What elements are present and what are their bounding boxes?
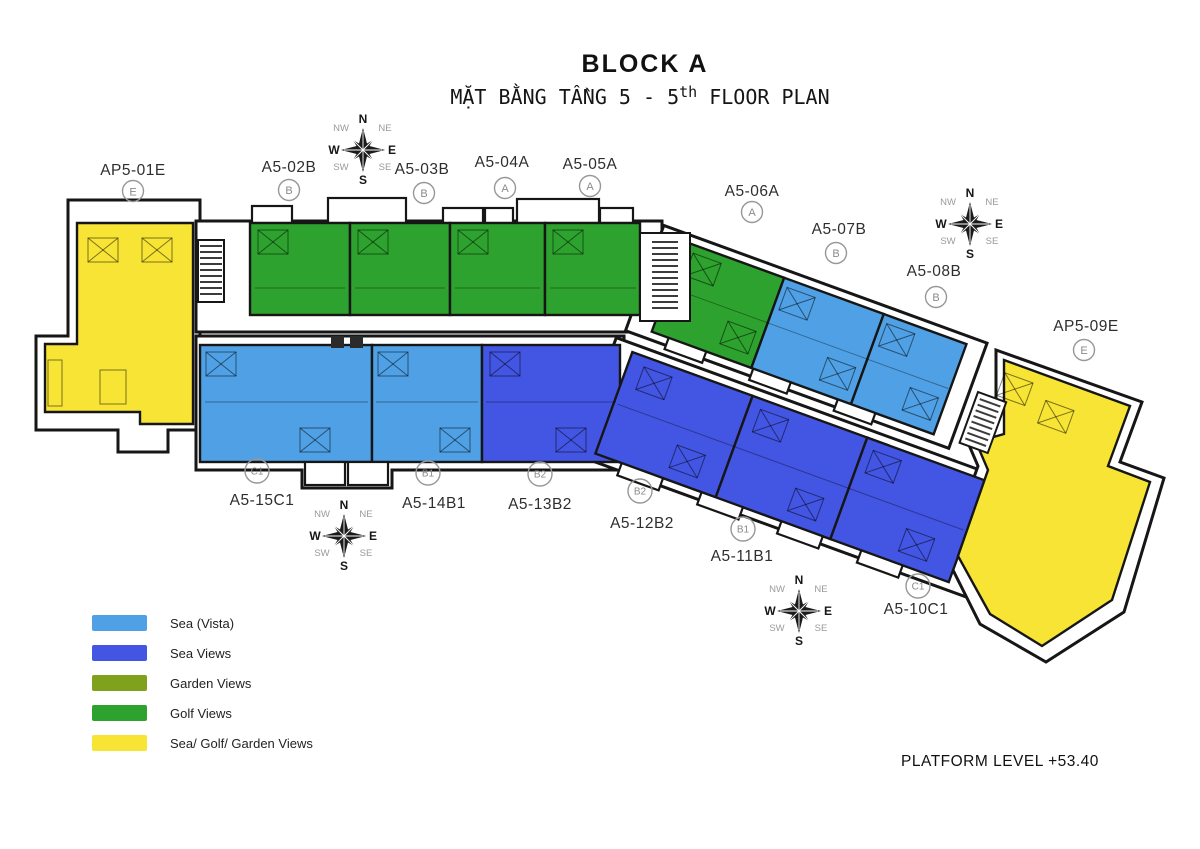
balcony <box>517 199 599 223</box>
balcony <box>328 198 406 223</box>
unit-label: A5-15C1 <box>230 492 295 509</box>
compass-ne: NE <box>985 197 998 208</box>
legend-item: Sea (Vista) <box>92 612 313 634</box>
unit-type: E <box>129 187 136 199</box>
unit-type: B <box>932 292 939 304</box>
unit-a5-15c1 <box>200 345 372 462</box>
unit-label: A5-08B <box>907 263 962 280</box>
page-subtitle: MẶT BẰNG TẦNG 5 - 5th FLOOR PLAN <box>450 83 829 109</box>
floor-plan-page: AP5-01E A5-02B A5-03B A5-04A A5-05A A5-0… <box>0 0 1200 849</box>
elevator <box>331 336 344 348</box>
unit-type: B2 <box>534 470 547 481</box>
unit-type: C1 <box>912 582 925 593</box>
unit-a5-14b1 <box>372 345 482 462</box>
unit-type: B1 <box>422 469 435 480</box>
legend-label: Sea Views <box>170 646 231 661</box>
platform-level-note: PLATFORM LEVEL +53.40 <box>901 753 1099 770</box>
compass-ne: NE <box>359 509 372 520</box>
compass-w: W <box>328 143 340 157</box>
legend-swatch <box>92 705 147 721</box>
unit-a5-04a <box>450 223 545 315</box>
balcony <box>443 208 483 223</box>
legend-swatch <box>92 735 147 751</box>
compass-s: S <box>795 634 803 648</box>
unit-type: B <box>420 188 427 200</box>
subtitle-prefix: MẶT BẰNG TẦNG 5 - 5 <box>450 84 679 109</box>
page-title: BLOCK A <box>582 50 709 78</box>
compass-nw: NW <box>940 197 956 208</box>
legend-label: Golf Views <box>170 706 232 721</box>
unit-label: A5-11B1 <box>711 548 774 565</box>
unit-label: A5-05A <box>563 156 618 173</box>
compass-se: SE <box>379 162 392 173</box>
unit-type: A <box>501 183 509 195</box>
compass-n: N <box>340 498 349 512</box>
balcony <box>348 462 388 485</box>
compass-se: SE <box>360 548 373 559</box>
unit-type: C1 <box>251 467 264 478</box>
unit-label: A5-13B2 <box>508 496 572 513</box>
unit-type: A <box>586 181 594 193</box>
compass-rose: NSEWNENWSESW <box>309 498 377 573</box>
unit-label: A5-10C1 <box>884 601 949 618</box>
compass-se: SE <box>815 623 828 634</box>
unit-label: A5-14B1 <box>402 495 466 512</box>
legend-label: Garden Views <box>170 676 251 691</box>
legend-swatch <box>92 615 147 631</box>
unit-type: E <box>1080 345 1087 357</box>
compass-sw: SW <box>314 548 329 559</box>
balcony <box>305 462 345 485</box>
unit-label: A5-02B <box>262 159 317 176</box>
subtitle-suffix: FLOOR PLAN <box>697 85 829 109</box>
elevator <box>350 336 363 348</box>
subtitle-superscript: th <box>679 83 697 101</box>
unit-label: AP5-01E <box>100 162 166 179</box>
balcony <box>600 208 633 223</box>
balcony <box>485 208 513 223</box>
compass-w: W <box>764 604 776 618</box>
unit-label: A5-06A <box>725 183 780 200</box>
compass-e: E <box>369 529 377 543</box>
unit-label: A5-07B <box>812 221 867 238</box>
compass-nw: NW <box>314 509 330 520</box>
legend-item: Sea/ Golf/ Garden Views <box>92 732 313 754</box>
unit-a5-02b <box>250 223 350 315</box>
compass-e: E <box>388 143 396 157</box>
unit-a5-03b <box>350 223 450 315</box>
compass-s: S <box>966 247 974 261</box>
compass-se: SE <box>986 236 999 247</box>
unit-a5-05a <box>545 223 640 315</box>
unit-label: A5-03B <box>395 161 450 178</box>
compass-e: E <box>824 604 832 618</box>
compass-s: S <box>359 173 367 187</box>
unit-type: B1 <box>737 525 750 536</box>
compass-nw: NW <box>769 584 785 595</box>
legend-label: Sea/ Golf/ Garden Views <box>170 736 313 751</box>
compass-rose: NSEWNENWSESW <box>764 573 832 648</box>
compass-w: W <box>309 529 321 543</box>
unit-label: A5-12B2 <box>610 515 674 532</box>
compass-rose: NSEWNENWSESW <box>935 186 1003 261</box>
legend-swatch <box>92 645 147 661</box>
compass-e: E <box>995 217 1003 231</box>
compass-rose: NSEWNENWSESW <box>328 112 396 187</box>
legend-swatch <box>92 675 147 691</box>
compass-sw: SW <box>769 623 784 634</box>
legend-item: Sea Views <box>92 642 313 664</box>
compass-n: N <box>359 112 368 126</box>
unit-type: A <box>748 207 756 219</box>
compass-ne: NE <box>814 584 827 595</box>
compass-sw: SW <box>333 162 348 173</box>
compass-ne: NE <box>378 123 391 134</box>
unit-type: B <box>832 248 839 260</box>
unit-label: A5-04A <box>475 154 530 171</box>
compass-s: S <box>340 559 348 573</box>
legend: Sea (Vista)Sea ViewsGarden ViewsGolf Vie… <box>92 612 313 762</box>
balcony <box>252 206 292 223</box>
legend-item: Garden Views <box>92 672 313 694</box>
unit-type: B <box>285 185 292 197</box>
compass-n: N <box>795 573 804 587</box>
legend-label: Sea (Vista) <box>170 616 234 631</box>
legend-item: Golf Views <box>92 702 313 724</box>
compass-w: W <box>935 217 947 231</box>
compass-nw: NW <box>333 123 349 134</box>
unit-type: B2 <box>634 487 647 498</box>
compass-n: N <box>966 186 975 200</box>
compass-sw: SW <box>940 236 955 247</box>
unit-label: AP5-09E <box>1053 318 1119 335</box>
